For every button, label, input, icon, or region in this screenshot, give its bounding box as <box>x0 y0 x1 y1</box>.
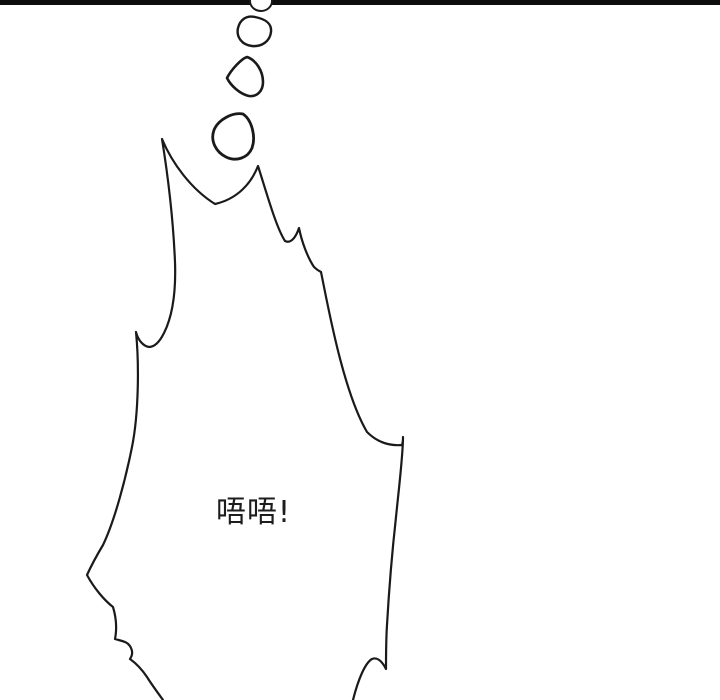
thought-bubble-text: 唔唔! <box>216 496 291 529</box>
trail-bubble-medium-icon <box>227 57 263 96</box>
thought-bubble-artwork <box>0 0 720 700</box>
trail-bubble-small-icon <box>238 17 271 47</box>
comic-panel: 唔唔! <box>0 0 720 700</box>
trail-bubble-large-icon <box>213 114 254 159</box>
thought-bubble-outline <box>87 139 403 700</box>
panel-top-border <box>0 0 720 5</box>
trail-bubble-tiny-icon <box>250 0 272 11</box>
